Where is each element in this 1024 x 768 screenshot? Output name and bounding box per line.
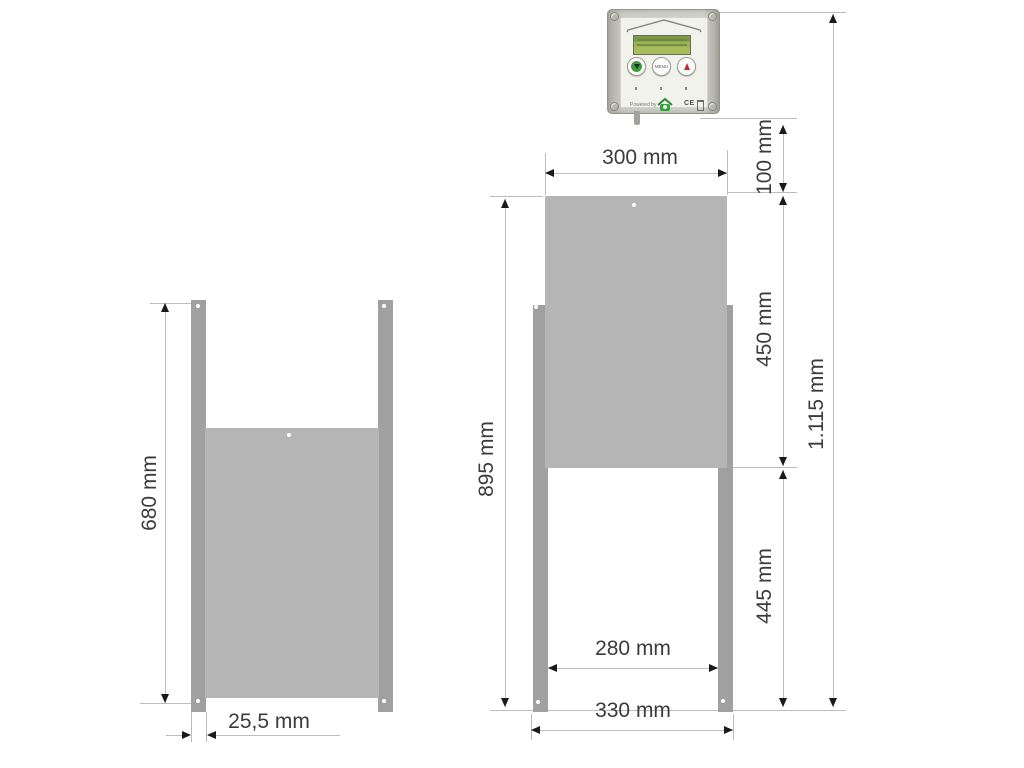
- screw-hole: [536, 700, 540, 704]
- roof-outline-icon: [625, 18, 703, 34]
- screw-icon: [610, 102, 619, 111]
- screw-hole: [196, 699, 200, 703]
- screw-hole: [632, 203, 636, 207]
- dimension-label: 450 mm: [753, 291, 777, 367]
- control-unit: MENU Powered by CE: [607, 9, 718, 112]
- screw-hole: [287, 433, 291, 437]
- dimension-label: 445 mm: [753, 548, 777, 624]
- left-view-rail-left: [191, 300, 206, 712]
- dimension-label: 330 mm: [595, 699, 671, 723]
- screw-icon: [708, 12, 717, 21]
- dimension-drawing-canvas: MENU Powered by CE 680 mm: [0, 0, 1024, 768]
- brand-logo-icon: [655, 97, 675, 112]
- left-view-rail-right: [378, 300, 393, 712]
- left-view-door-panel: [205, 428, 379, 698]
- extension-line: [718, 12, 846, 13]
- dimension-label: 895 mm: [475, 421, 499, 497]
- right-view-door-panel: [545, 196, 727, 468]
- screw-hole: [721, 699, 725, 703]
- screw-hole: [382, 699, 386, 703]
- screw-icon: [610, 12, 619, 21]
- ce-mark: CE: [684, 100, 695, 107]
- screw-hole: [534, 305, 538, 309]
- dimension-label: 25,5 mm: [228, 710, 310, 734]
- weee-bin-icon: [697, 100, 704, 111]
- up-arrow-icon: [684, 63, 690, 70]
- down-arrow-icon: [631, 61, 642, 72]
- extension-line: [727, 467, 797, 468]
- screw-hole: [382, 304, 386, 308]
- button-caption-mark: [660, 87, 662, 90]
- button-caption-mark: [635, 87, 637, 90]
- extension-line: [490, 196, 543, 197]
- dimension-label: 100 mm: [753, 119, 777, 195]
- dimension-label: 300 mm: [602, 146, 678, 170]
- dimension-label: 680 mm: [138, 455, 162, 531]
- extension-line: [700, 118, 797, 119]
- screw-icon: [708, 102, 717, 111]
- door-down-button[interactable]: [627, 57, 646, 76]
- screw-hole: [196, 304, 200, 308]
- powered-by-label: Powered by: [630, 102, 656, 108]
- lcd-display: [633, 35, 691, 55]
- menu-button-label: MENU: [655, 64, 668, 69]
- door-up-button[interactable]: [677, 57, 696, 76]
- button-caption-mark: [685, 87, 687, 90]
- lcd-text-row: [637, 44, 687, 46]
- lcd-text-row: [637, 39, 687, 41]
- menu-button[interactable]: MENU: [652, 57, 671, 76]
- dimension-label: 280 mm: [595, 637, 671, 661]
- dimension-label: 1.115 mm: [805, 358, 829, 450]
- cable-stub: [634, 111, 640, 125]
